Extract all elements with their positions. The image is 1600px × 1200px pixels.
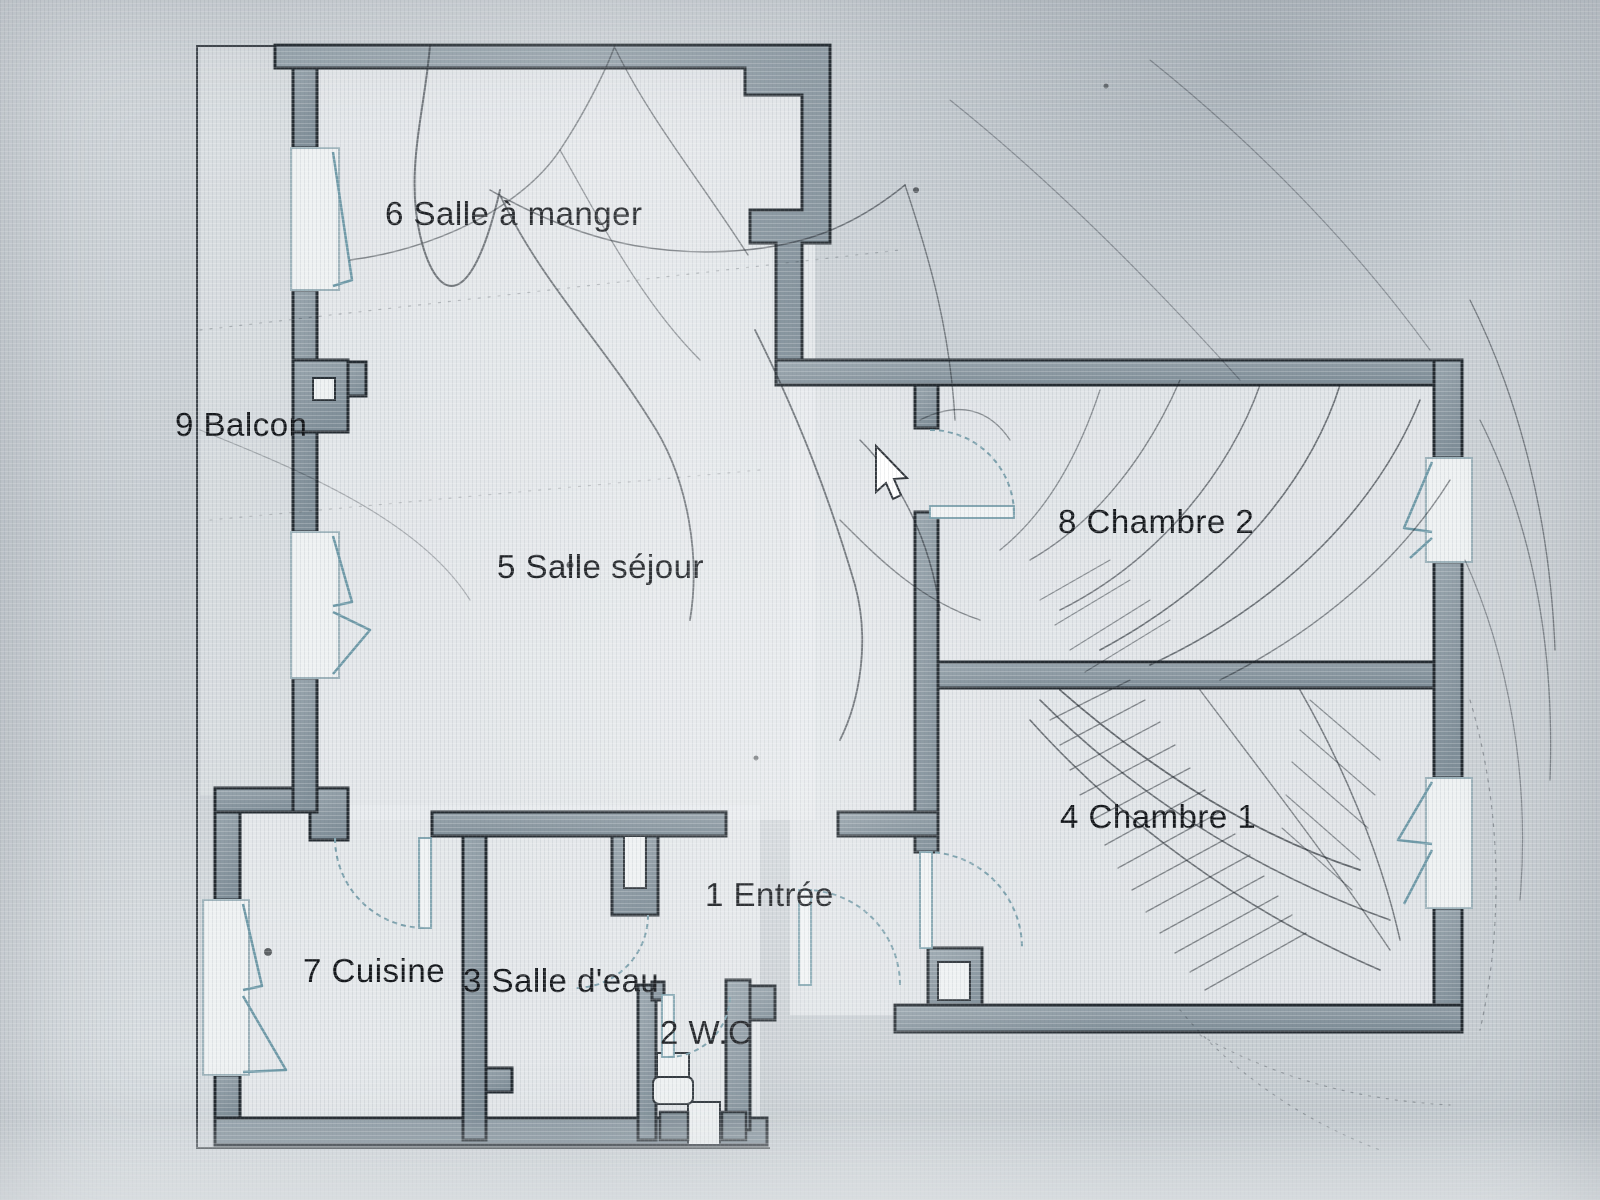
room-label-salle-a-manger: 6 Salle à manger [385,195,642,232]
room-label-wc: 2 W.C [660,1014,752,1051]
room-label-salle-sejour: 5 Salle séjour [497,548,704,585]
room-label-cuisine: 7 Cuisine [303,952,445,989]
room-label-balcon: 9 Balcon [175,406,307,443]
floor-plan: 6 Salle à manger 9 Balcon 5 Salle séjour… [0,0,1600,1200]
screen-photo: 6 Salle à manger 9 Balcon 5 Salle séjour… [0,0,1600,1200]
room-label-salle-deau: 3 Salle d'eau [463,962,659,999]
room-label-chambre-1: 4 Chambre 1 [1060,798,1256,835]
room-label-entree: 1 Entrée [705,876,834,913]
room-label-chambre-2: 8 Chambre 2 [1058,503,1254,540]
